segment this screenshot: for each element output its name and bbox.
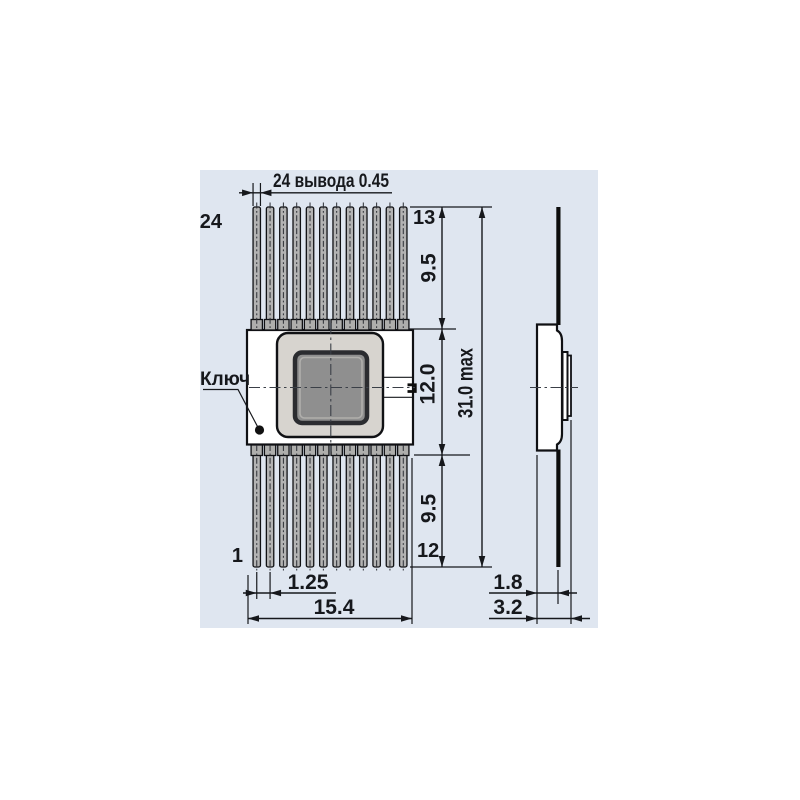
dim-lead-pitch: 1.25 bbox=[288, 571, 329, 594]
drawing-canvas: Ключ bbox=[0, 0, 800, 800]
key-label: Ключ bbox=[200, 369, 250, 390]
dim-upper-leads: 9.5 bbox=[418, 253, 441, 283]
side-lid-inner bbox=[563, 352, 568, 420]
pin-label-1: 1 bbox=[232, 545, 243, 567]
dim-lower-leads: 9.5 bbox=[418, 494, 441, 524]
key-dot bbox=[255, 425, 264, 434]
dim-side-body-label: 1.8 bbox=[493, 571, 523, 594]
dim-side-overall-label: 3.2 bbox=[493, 596, 522, 619]
top-dimension-label: 24 вывода 0.45 bbox=[273, 171, 389, 192]
side-leads-upper bbox=[556, 207, 560, 325]
pin-label-24: 24 bbox=[200, 211, 223, 233]
pin-label-13: 13 bbox=[413, 207, 435, 229]
side-leads-lower bbox=[556, 450, 560, 568]
package-dimensional-drawing: Ключ bbox=[0, 0, 800, 800]
dim-body-height: 12.0 bbox=[417, 364, 440, 405]
dim-overall-height: 31.0 max bbox=[455, 348, 478, 418]
dim-body-width-label: 15.4 bbox=[314, 596, 355, 619]
pin-label-12: 12 bbox=[417, 540, 439, 562]
